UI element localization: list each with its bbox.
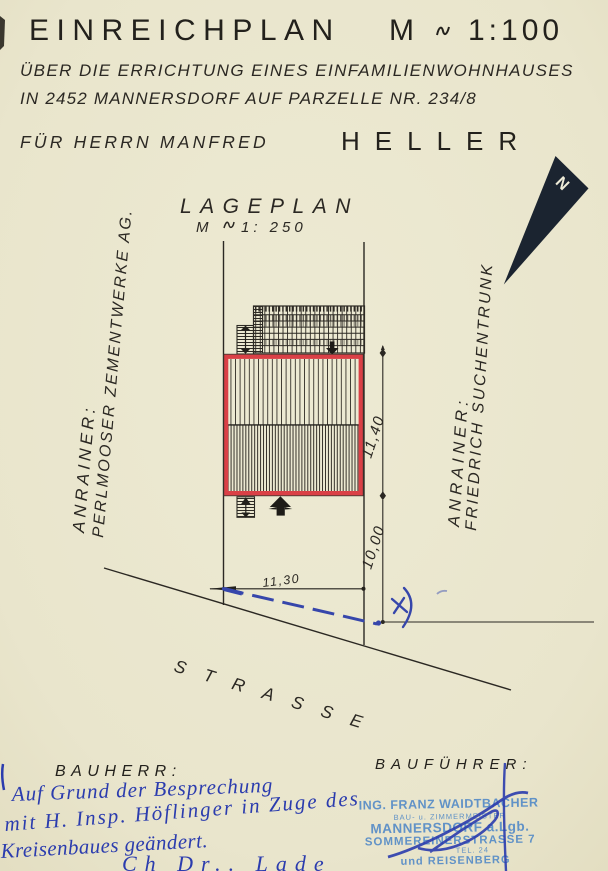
svg-text:Ch Dr.. Lade: Ch Dr.. Lade (122, 851, 332, 871)
svg-text:1:100: 1:100 (468, 14, 563, 47)
svg-text:IN 2452 MANNERSDORF AUF PARZEL: IN 2452 MANNERSDORF AUF PARZELLE NR. 234… (20, 89, 477, 108)
svg-text:und REISENBERG: und REISENBERG (400, 854, 510, 868)
svg-text:1: 250: 1: 250 (241, 219, 307, 236)
svg-text:ÜBER DIE ERRICHTUNG EINES EINF: ÜBER DIE ERRICHTUNG EINES EINFAMILIENWOH… (20, 61, 574, 80)
svg-text:M: M (389, 14, 414, 47)
svg-text:FÜR HERRN MANFRED: FÜR HERRN MANFRED (20, 132, 269, 152)
svg-text:M: M (196, 219, 211, 236)
svg-text:EINREICHPLAN: EINREICHPLAN (29, 14, 341, 47)
svg-text:BAUFÜHRER:: BAUFÜHRER: (375, 755, 533, 773)
svg-text:LAGEPLAN: LAGEPLAN (180, 195, 359, 218)
svg-text:HELLER: HELLER (341, 126, 532, 156)
